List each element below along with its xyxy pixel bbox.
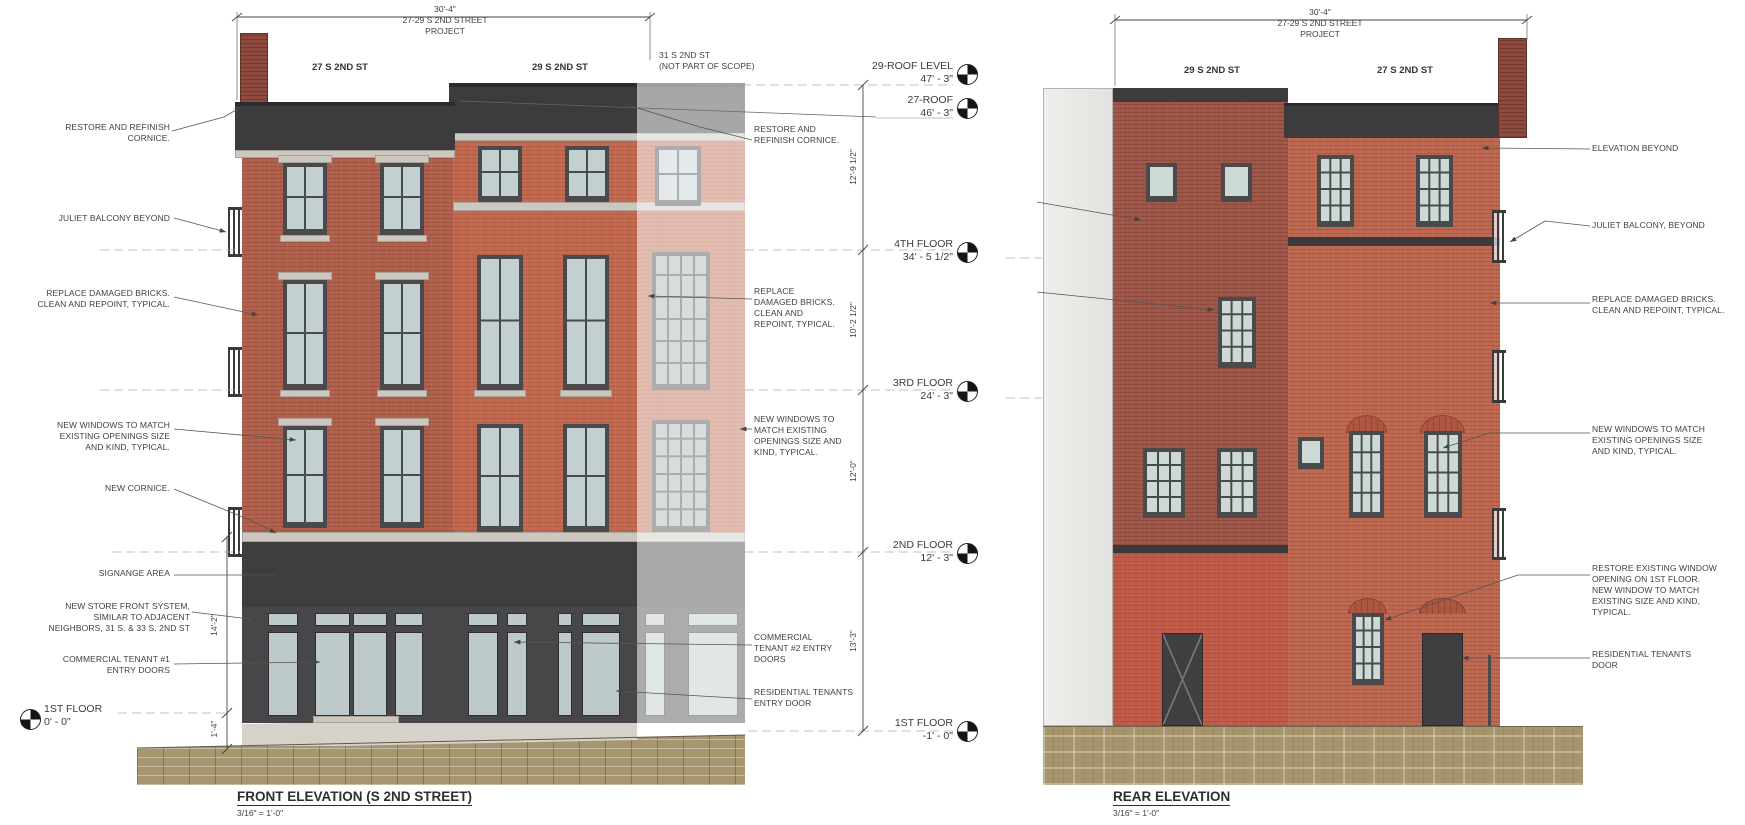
window-29-4f-a <box>478 146 522 202</box>
rear-window-27-low <box>1352 613 1384 685</box>
rear-window-29-low-b <box>1217 448 1257 518</box>
level-3rd-floor: 3RD FLOOR24' - 3" <box>841 377 953 402</box>
front-31-fade-overlay <box>637 56 745 731</box>
rear-ground <box>1043 726 1583 785</box>
transom <box>558 613 572 626</box>
level-1st-floor-left: 1ST FLOOR0' - 0" <box>44 703 124 728</box>
transom <box>507 613 527 626</box>
note-new-windows-left: NEW WINDOWS TO MATCH EXISTING OPENINGS S… <box>0 420 170 453</box>
tenant1-entry-door <box>353 632 387 716</box>
note-replace-bricks-left: REPLACE DAMAGED BRICKS. CLEAN AND REPOIN… <box>0 288 170 310</box>
note-signage-area: SIGNANGE AREA <box>0 568 170 579</box>
tenant2-entry-door <box>468 632 498 716</box>
window-29-2f-b <box>563 424 609 532</box>
juliet-balcony <box>228 347 242 397</box>
datum-marker <box>957 98 978 119</box>
window-27-3f-a <box>283 280 327 390</box>
juliet-balcony <box>1492 508 1506 560</box>
rear-window-27-mid-a <box>1349 431 1384 518</box>
vdim-storefront: 14'-2" <box>209 590 219 660</box>
lintel <box>375 418 429 426</box>
rear-dim-total: 30'-4" <box>1265 7 1375 18</box>
storefront-glass <box>507 632 527 716</box>
note-new-windows-rear: NEW WINDOWS TO MATCH EXISTING OPENINGS S… <box>1592 424 1732 457</box>
juliet-balcony <box>1492 350 1506 403</box>
window-27-3f-b <box>380 280 424 390</box>
note-elevation-beyond: ELEVATION BEYOND <box>1592 143 1722 154</box>
window-29-3f-b <box>563 255 609 390</box>
rear-window-27-top-a <box>1317 155 1354 227</box>
note-residential-door-rear: RESIDENTIAL TENANTS DOOR <box>1592 649 1722 671</box>
lintel <box>278 272 332 280</box>
vdim-2f-1f: 13'-3" <box>848 606 858 676</box>
window-27-4f-b <box>380 163 424 235</box>
datum-marker <box>957 721 978 742</box>
level-1st-floor-right: 1ST FLOOR-1' - 0" <box>841 717 953 742</box>
level-2nd-floor: 2ND FLOOR12' - 3" <box>841 539 953 564</box>
juliet-balcony <box>228 207 242 257</box>
rear-window-29-low-a <box>1143 448 1185 518</box>
rear-dim-label: 27-29 S 2ND STREET PROJECT <box>1235 18 1405 39</box>
transom <box>468 613 498 626</box>
datum-marker <box>20 709 41 730</box>
note-restore-window-rear: RESTORE EXISTING WINDOW OPENING ON 1ST F… <box>1592 563 1737 618</box>
sill <box>280 390 330 397</box>
sill <box>280 235 330 242</box>
level-29-roof: 29-ROOF LEVEL47' - 3" <box>841 60 953 85</box>
lintel <box>375 155 429 163</box>
rear-wall-29-upper <box>1113 101 1288 553</box>
rear-window-29-small-a <box>1146 163 1177 202</box>
vdim-4f-3f: 10'-2 1/2" <box>848 285 858 355</box>
level-4th-floor: 4TH FLOOR34' - 5 1/2" <box>841 238 953 263</box>
vdim-3f-2f: 12'-0" <box>848 436 858 506</box>
transom <box>268 613 298 626</box>
datum-marker <box>957 381 978 402</box>
window-27-2f-b <box>380 426 424 528</box>
front-title: FRONT ELEVATION (S 2ND STREET) <box>237 789 472 806</box>
rear-elevation-beyond-slab <box>1043 88 1113 726</box>
storefront-glass <box>395 632 423 716</box>
lintel <box>375 272 429 280</box>
rear-band-29 <box>1113 545 1288 553</box>
juliet-balcony <box>228 507 242 557</box>
note-storefront-system: NEW STORE FRONT SYSTEM, SIMILAR TO ADJAC… <box>0 601 190 634</box>
note-new-cornice: NEW CORNICE. <box>0 483 170 494</box>
note-replace-bricks-rear: REPLACE DAMAGED BRICKS. CLEAN AND REPOIN… <box>1592 294 1742 316</box>
front-bldg31-label: 31 S 2ND ST (NOT PART OF SCOPE) <box>659 50 779 72</box>
elevation-sheet: 30'-4" 27-29 S 2ND STREET PROJECT 27 S 2… <box>0 0 1745 825</box>
note-tenant1-doors: COMMERCIAL TENANT #1 ENTRY DOORS <box>0 654 170 676</box>
sill <box>377 390 427 397</box>
front-cornice-27 <box>235 102 455 154</box>
note-juliet-balcony-left: JULIET BALCONY BEYOND <box>0 213 170 224</box>
window-29-4f-b <box>565 146 609 202</box>
front-dim-label: 27-29 S 2ND STREET PROJECT <box>360 15 530 36</box>
residential-entry-door <box>558 632 572 716</box>
vdim-curb: 1'-4" <box>209 694 219 764</box>
rear-window-29-mid <box>1218 297 1256 368</box>
rear-window-27-mid-b <box>1424 431 1462 518</box>
lintel <box>278 418 332 426</box>
window-27-2f-a <box>283 426 327 528</box>
datum-marker <box>957 242 978 263</box>
sill <box>474 390 526 397</box>
downspout <box>1488 655 1491 726</box>
transom <box>395 613 423 626</box>
rear-window-29-small-b <box>1221 163 1252 202</box>
juliet-balcony <box>1492 210 1506 263</box>
transom <box>315 613 350 626</box>
rear-residential-door <box>1422 633 1463 726</box>
rear-title: REAR ELEVATION <box>1113 789 1230 806</box>
rear-window-27-small <box>1298 437 1324 469</box>
tenant2-entry-door <box>582 632 620 716</box>
level-27-roof: 27-ROOF46' - 3" <box>841 94 953 119</box>
lintel <box>278 155 332 163</box>
rear-chimney <box>1498 38 1527 138</box>
vdim-roof-4f: 12'-9 1/2" <box>848 132 858 202</box>
note-residential-entry: RESIDENTIAL TENANTS ENTRY DOOR <box>754 687 874 709</box>
rear-band-27 <box>1288 237 1500 246</box>
front-bldg27-label: 27 S 2ND ST <box>280 62 400 73</box>
front-chimney <box>240 33 268 105</box>
rear-bldg27-label: 27 S 2ND ST <box>1345 65 1465 76</box>
datum-marker <box>957 64 978 85</box>
transom <box>353 613 387 626</box>
front-scale: 3/16" = 1'-0" <box>237 808 283 818</box>
front-bldg29-label: 29 S 2ND ST <box>500 62 620 73</box>
entry-step <box>313 716 399 723</box>
rear-door-29 <box>1162 633 1203 726</box>
note-restore-cornice-left: RESTORE AND REFINISH CORNICE. <box>0 122 170 144</box>
front-dim-total: 30'-4" <box>390 4 500 15</box>
tenant1-entry-door <box>315 632 350 716</box>
window-27-4f-a <box>283 163 327 235</box>
rear-scale: 3/16" = 1'-0" <box>1113 808 1159 818</box>
window-29-2f-a <box>477 424 523 532</box>
storefront-glass <box>268 632 298 716</box>
rear-bldg29-label: 29 S 2ND ST <box>1152 65 1272 76</box>
sill <box>377 235 427 242</box>
note-juliet-balcony-rear: JULIET BALCONY, BEYOND <box>1592 220 1732 231</box>
rear-cornice-27 <box>1284 103 1504 138</box>
window-29-3f-a <box>477 255 523 390</box>
datum-marker <box>957 543 978 564</box>
transom <box>582 613 620 626</box>
sill <box>560 390 612 397</box>
rear-window-27-top-b <box>1416 155 1453 227</box>
rear-coping-29 <box>1113 88 1288 102</box>
